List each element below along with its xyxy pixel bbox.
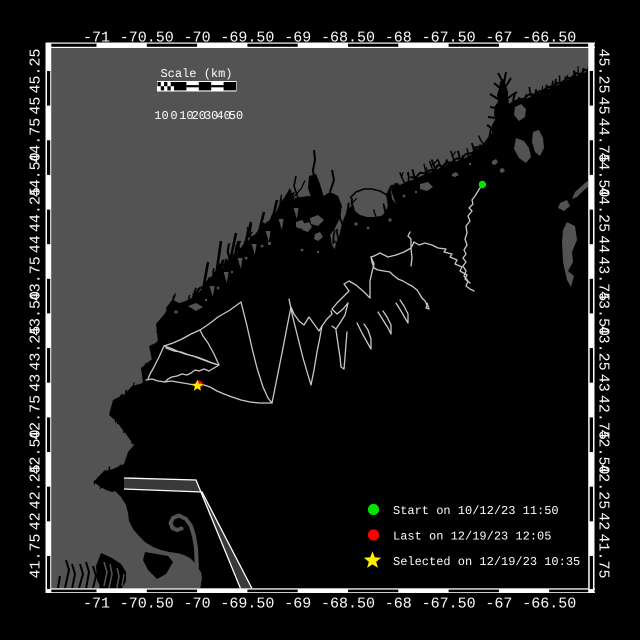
svg-text:43.25: 43.25 — [595, 326, 612, 371]
svg-text:-70: -70 — [184, 596, 211, 613]
svg-text:41.75: 41.75 — [28, 533, 45, 578]
svg-text:-70.50: -70.50 — [120, 596, 174, 613]
svg-text:-70.50: -70.50 — [120, 30, 174, 47]
svg-text:45: 45 — [28, 97, 45, 115]
svg-text:-68.50: -68.50 — [321, 30, 375, 47]
svg-text:-71: -71 — [83, 596, 110, 613]
svg-text:-69.50: -69.50 — [220, 596, 274, 613]
svg-text:42: 42 — [595, 512, 612, 530]
svg-text:10: 10 — [154, 109, 168, 123]
svg-text:45.25: 45.25 — [28, 48, 45, 93]
svg-text:-67: -67 — [485, 596, 512, 613]
svg-text:43: 43 — [28, 374, 45, 392]
svg-text:-68.50: -68.50 — [321, 596, 375, 613]
svg-text:-68: -68 — [385, 596, 412, 613]
svg-text:50: 50 — [229, 109, 243, 123]
svg-text:-67.50: -67.50 — [422, 30, 476, 47]
svg-text:-66.50: -66.50 — [522, 596, 576, 613]
svg-text:-66.50: -66.50 — [522, 30, 576, 47]
svg-text:44.25: 44.25 — [28, 187, 45, 232]
svg-text:-67.50: -67.50 — [422, 596, 476, 613]
svg-text:-71: -71 — [83, 30, 110, 47]
svg-text:42.25: 42.25 — [28, 464, 45, 509]
svg-text:Start on 10/12/23 11:50: Start on 10/12/23 11:50 — [393, 504, 559, 518]
svg-text:43: 43 — [595, 374, 612, 392]
svg-text:Last on 12/19/23 12:05: Last on 12/19/23 12:05 — [393, 530, 551, 544]
svg-text:44: 44 — [28, 235, 45, 253]
svg-text:Selected on 12/19/23 10:35: Selected on 12/19/23 10:35 — [393, 555, 580, 569]
svg-text:42: 42 — [28, 512, 45, 530]
svg-text:44.25: 44.25 — [595, 187, 612, 232]
svg-text:41.75: 41.75 — [595, 533, 612, 578]
svg-text:-70: -70 — [184, 30, 211, 47]
svg-text:-69.50: -69.50 — [220, 30, 274, 47]
svg-text:-69: -69 — [284, 30, 311, 47]
svg-text:43.25: 43.25 — [28, 326, 45, 371]
svg-text:Scale (km): Scale (km) — [160, 67, 232, 81]
svg-text:-69: -69 — [284, 596, 311, 613]
svg-text:0: 0 — [170, 109, 177, 123]
svg-text:45: 45 — [595, 97, 612, 115]
svg-text:-68: -68 — [385, 30, 412, 47]
svg-text:-67: -67 — [485, 30, 512, 47]
svg-text:45.25: 45.25 — [595, 48, 612, 93]
svg-text:42.25: 42.25 — [595, 464, 612, 509]
svg-text:44: 44 — [595, 235, 612, 253]
